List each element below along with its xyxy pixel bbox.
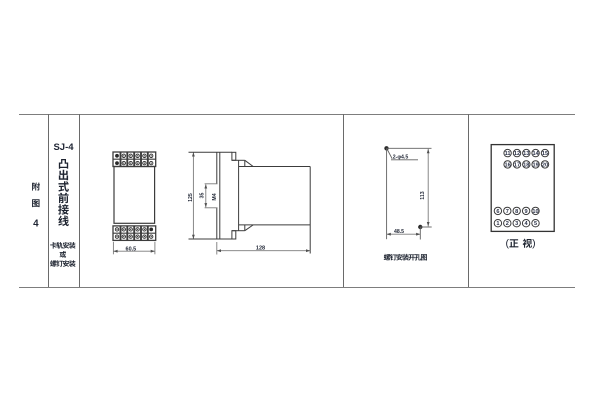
svg-text:9: 9 [525,209,528,215]
svg-text:1: 1 [496,221,499,227]
svg-text:128: 128 [256,245,265,251]
svg-text:15: 15 [542,151,548,157]
svg-text:19: 19 [532,162,538,168]
svg-text:SJ-4: SJ-4 [53,142,74,153]
svg-text:10: 10 [532,209,538,215]
svg-text:2-φ4.5: 2-φ4.5 [393,155,409,161]
svg-text:20: 20 [542,162,548,168]
svg-text:6: 6 [496,209,499,215]
svg-text:7: 7 [506,209,509,215]
svg-text:11: 11 [505,151,511,157]
svg-text:8: 8 [515,209,518,215]
svg-text:18: 18 [523,162,529,168]
svg-text:12: 12 [514,151,520,157]
svg-text:17: 17 [514,162,520,168]
svg-text:113: 113 [420,191,426,199]
svg-text:16: 16 [504,162,510,168]
svg-text:48.5: 48.5 [394,229,404,235]
svg-text:13: 13 [523,151,529,157]
svg-text:3: 3 [515,221,518,227]
svg-text:125: 125 [188,193,194,202]
svg-text:): ) [532,238,536,250]
svg-text:(: ( [506,238,510,250]
svg-text:4: 4 [33,218,39,229]
svg-text:2: 2 [506,221,509,227]
svg-text:M4: M4 [212,193,218,200]
svg-text:35: 35 [200,193,206,199]
svg-text:60.5: 60.5 [126,247,137,253]
svg-text:14: 14 [532,151,539,157]
svg-text:5: 5 [534,221,537,227]
